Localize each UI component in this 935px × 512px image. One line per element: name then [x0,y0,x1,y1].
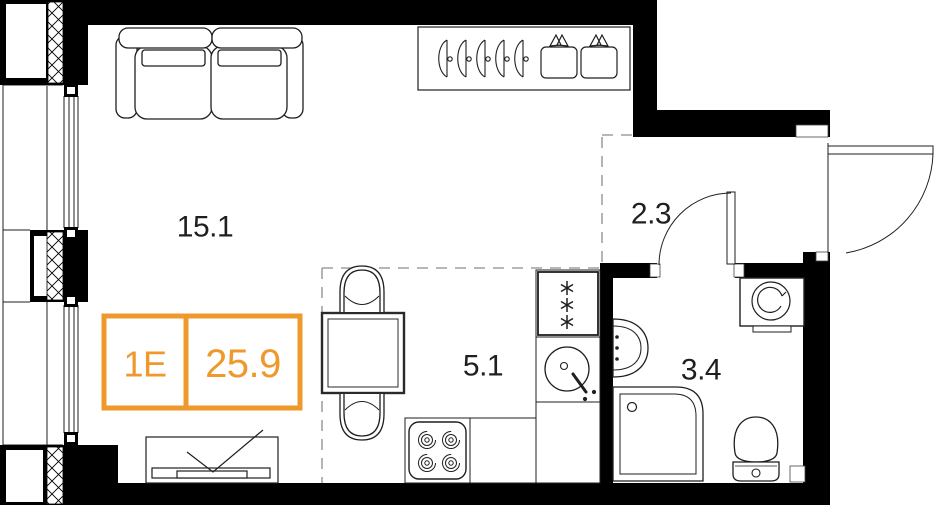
unit-badge: 1E 25.9 [104,316,300,408]
fridge-icon [538,272,598,335]
washbasin-icon [613,319,648,377]
entrance-door-swing-icon [828,143,933,253]
toilet-icon [733,417,779,481]
room-label-bathroom: 3.4 [681,354,721,387]
shower-icon [613,387,703,481]
chair-icon [340,266,384,312]
chair-icon [340,394,384,440]
unit-type-label: 1E [123,344,166,385]
tv-stand-icon [146,430,278,483]
floor-plan: 15.1 2.3 5.1 3.4 1E 25.9 [0,0,935,512]
stove-icon [409,422,466,479]
room-label-living: 15.1 [177,211,233,244]
room-label-hallway: 2.3 [631,198,671,231]
sofa-icon [116,28,303,119]
unit-area-value: 25.9 [205,342,281,386]
wall-insulation-hatch [6,2,63,504]
washing-machine-icon [740,278,804,332]
floor-plan-drawing: 15.1 2.3 5.1 3.4 1E 25.9 [0,0,935,512]
dish-rack-icon [418,27,630,90]
room-label-kitchen: 5.1 [463,350,503,383]
dining-table-icon [322,313,404,393]
